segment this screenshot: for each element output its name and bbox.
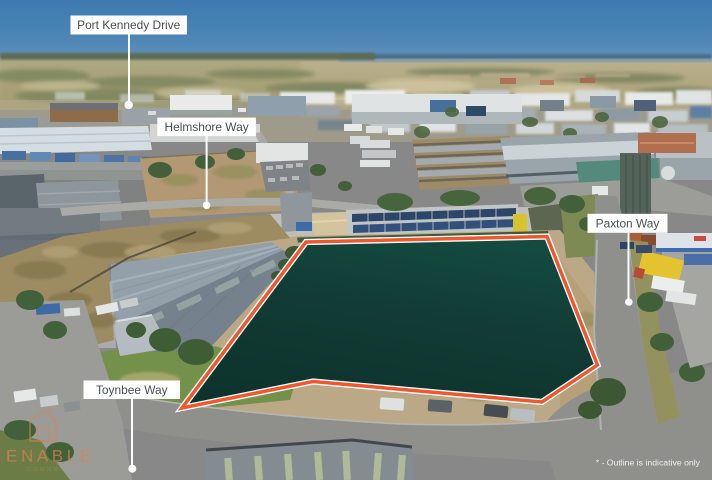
svg-text:COMMERCIAL: COMMERCIAL: [27, 467, 88, 473]
svg-text:Port Kennedy Drive: Port Kennedy Drive: [77, 18, 180, 32]
svg-text:ENABLE: ENABLE: [6, 447, 95, 466]
svg-text:* - Outline is indicative only: * - Outline is indicative only: [596, 458, 701, 468]
svg-text:Paxton Way: Paxton Way: [596, 216, 660, 230]
svg-text:Helmshore Way: Helmshore Way: [165, 120, 249, 134]
svg-text:Toynbee Way: Toynbee Way: [96, 383, 168, 397]
